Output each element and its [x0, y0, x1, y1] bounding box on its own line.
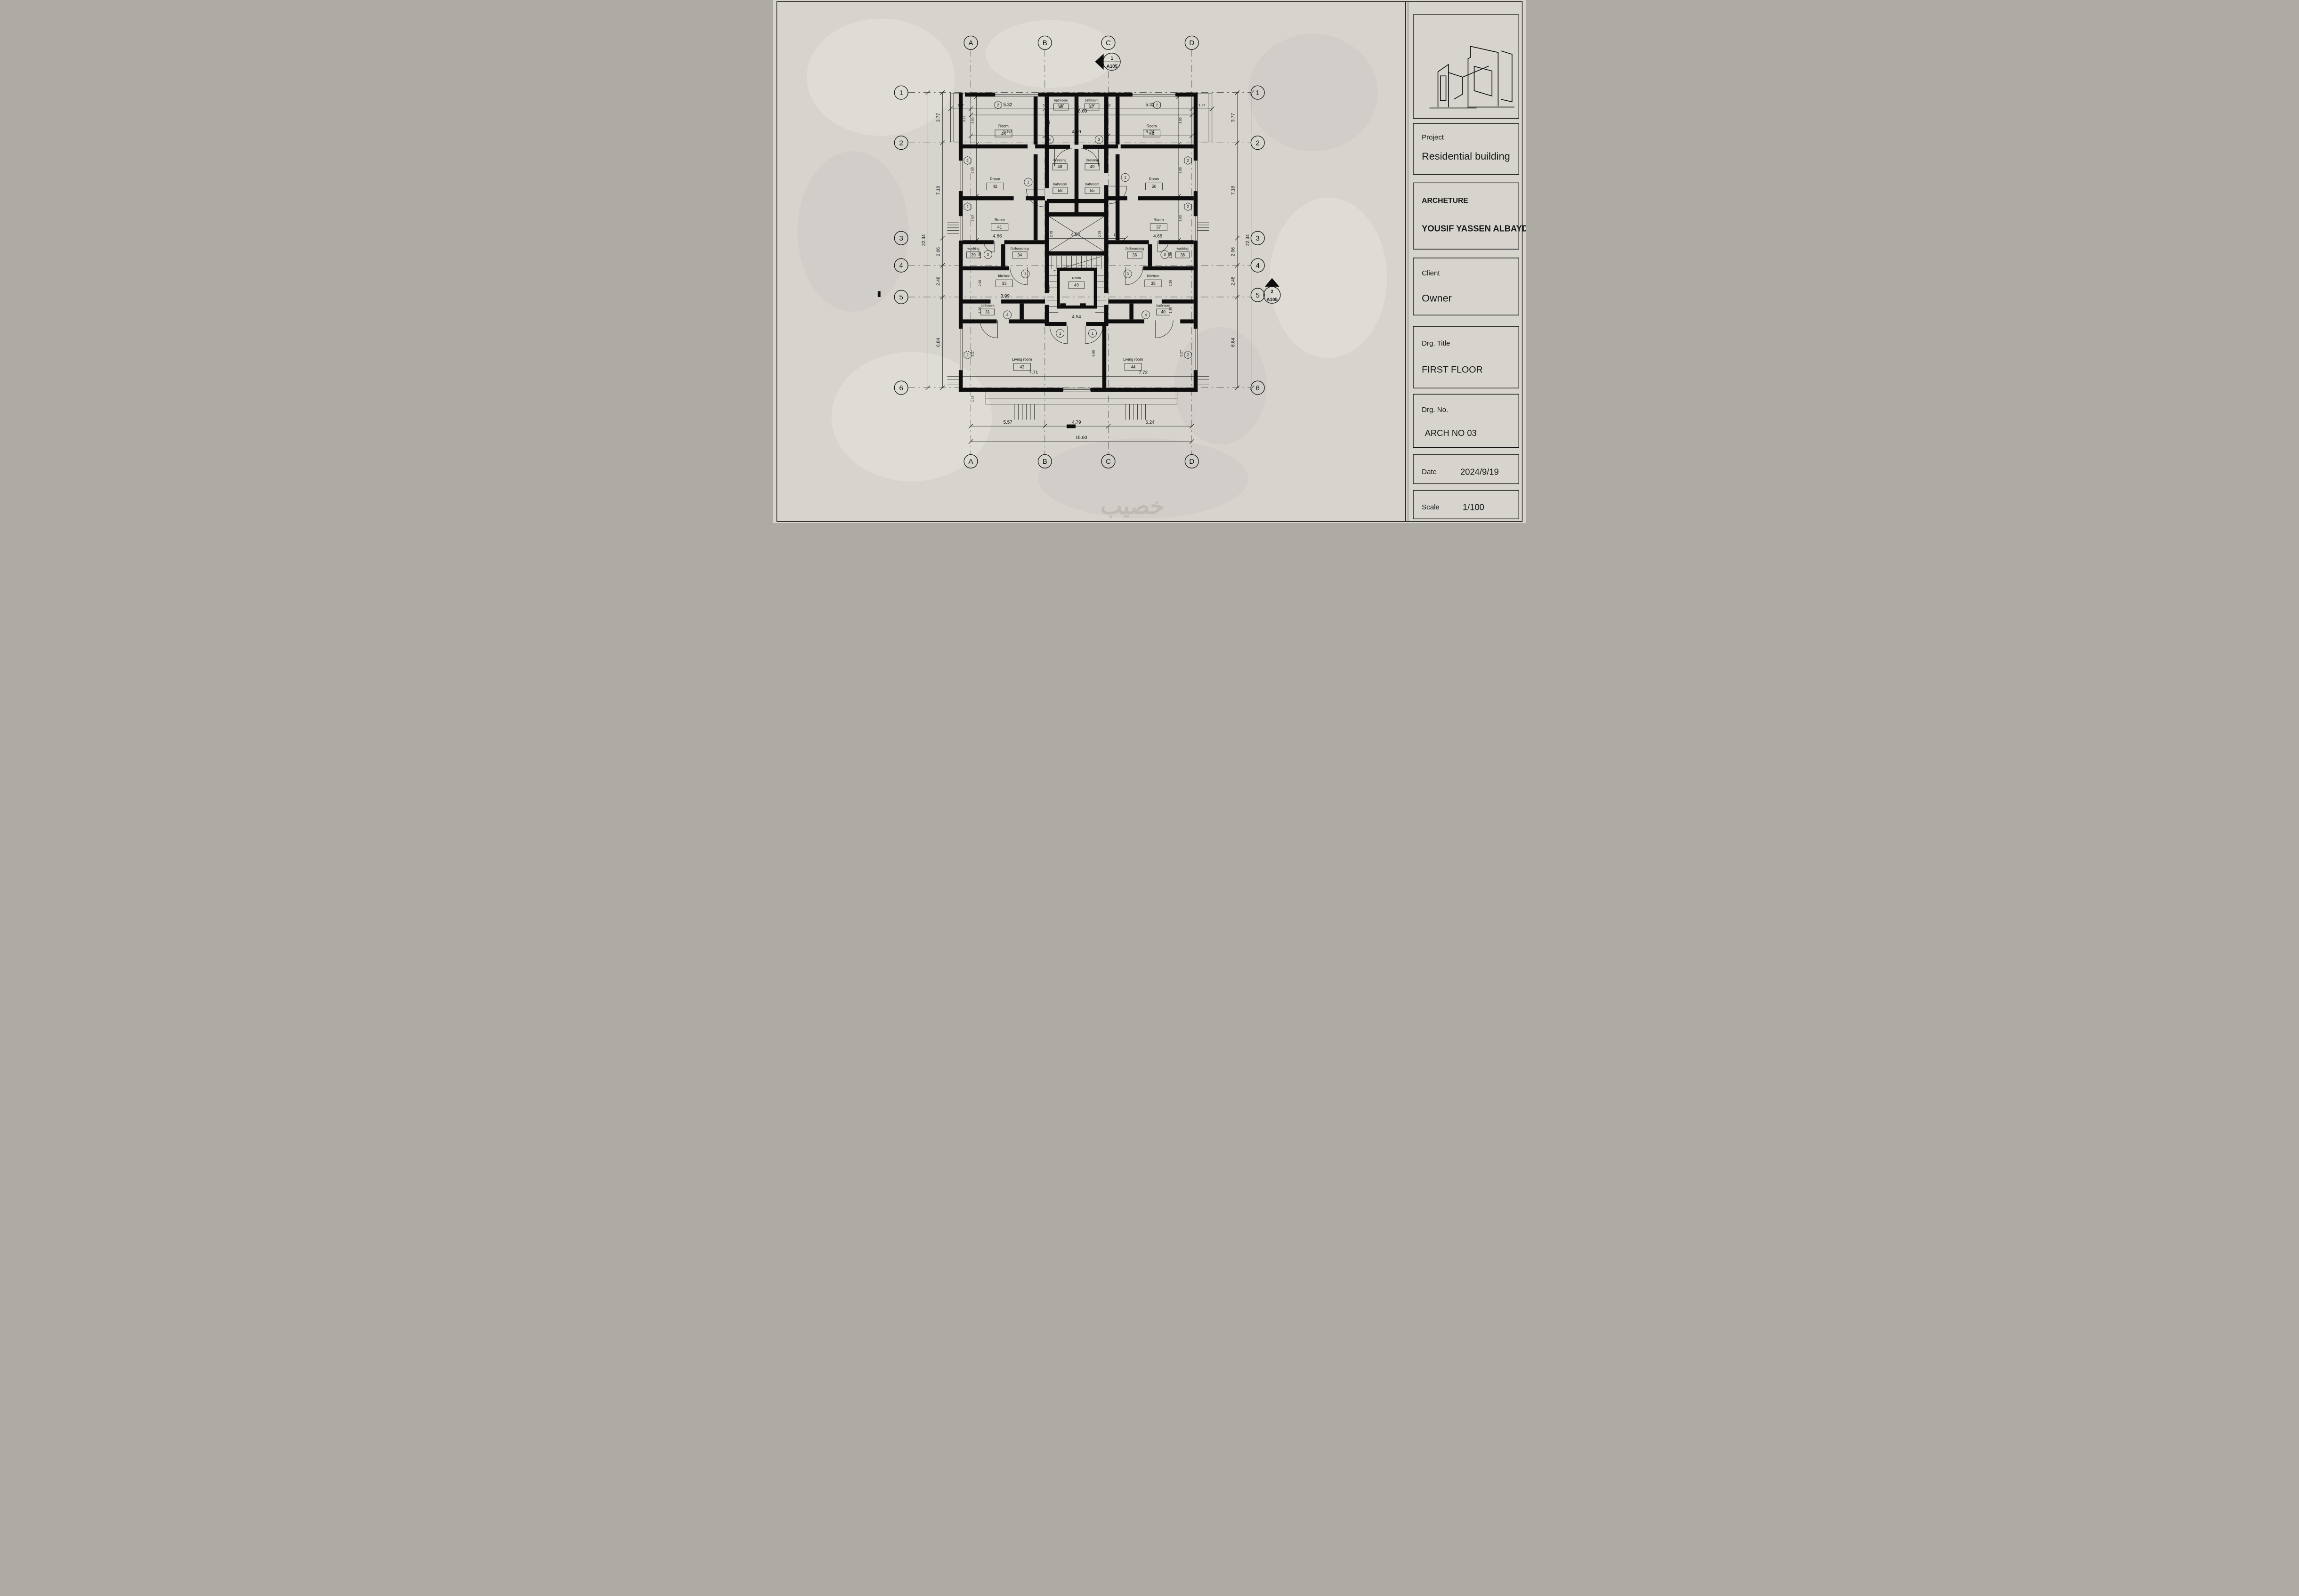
drg-no-label: Drg. No.	[1422, 406, 1448, 414]
svg-text:bathroom: bathroom	[1157, 305, 1170, 308]
grid-row-4-left: 4	[899, 262, 903, 270]
svg-text:1: 1	[1124, 176, 1126, 180]
svg-text:2: 2	[1187, 159, 1189, 163]
room-l-kitchen: kitchen33	[996, 274, 1013, 287]
window-tag-2b: 2	[1154, 101, 1161, 109]
svg-text:54: 54	[1149, 131, 1154, 136]
svg-text:Dishwashing: Dishwashing	[1011, 247, 1029, 250]
client-label: Client	[1422, 269, 1440, 277]
window-tag-2f: 2	[1184, 203, 1191, 211]
svg-text:2: 2	[1187, 353, 1189, 357]
shaft-lightwell	[1049, 216, 1104, 251]
scale-label: Scale	[1422, 503, 1440, 511]
dim-r-living-w: 7.72	[1139, 370, 1148, 375]
svg-text:Dressing: Dressing	[1086, 159, 1099, 162]
drg-title-value: FIRST FLOOR	[1422, 364, 1483, 375]
svg-text:Dressing: Dressing	[1053, 159, 1066, 162]
door-tag-3c: 3	[984, 250, 992, 258]
dim-right-34: 2.06	[1231, 247, 1236, 256]
svg-text:47: 47	[1089, 105, 1094, 109]
grid-col-D-top: D	[1189, 39, 1194, 47]
drg-no-value: ARCH NO 03	[1425, 428, 1477, 438]
svg-text:40: 40	[1161, 310, 1166, 314]
grid-col-D-bottom: D	[1189, 458, 1194, 466]
dim-r-kitchen-h: 2.50	[1169, 280, 1173, 287]
dim-right-12: 3.77	[1231, 113, 1236, 122]
client-box	[1413, 258, 1519, 315]
dim-l-kitchen-w: 3.99	[1001, 294, 1010, 299]
architect-value: YOUSIF YASSEN ALBAYDA	[1422, 224, 1526, 234]
dim-r-living-h: 5.27	[1180, 350, 1183, 357]
grid-row-5-left: 5	[899, 293, 903, 301]
svg-text:34: 34	[1017, 253, 1022, 258]
door-tag-3e: 3	[1021, 270, 1029, 278]
client-value: Owner	[1422, 292, 1452, 304]
scale-value: 1/100	[1463, 502, 1484, 512]
room-l-dishwashing: Dishwashing34	[1011, 247, 1029, 258]
room-l-bath-mid: bathroom58	[1053, 183, 1068, 193]
dim-right-45: 2.48	[1231, 276, 1236, 286]
svg-text:Living room: Living room	[1012, 357, 1032, 362]
project-box	[1413, 123, 1519, 174]
dim-room37-w: 4.66	[1153, 234, 1163, 239]
architect-label: ARCHETURE	[1422, 197, 1468, 205]
svg-text:58: 58	[1058, 188, 1062, 193]
dim-left-45: 2.48	[936, 276, 941, 286]
svg-text:2: 2	[966, 353, 968, 357]
logo-building-lineart	[1430, 46, 1514, 108]
svg-text:49: 49	[1090, 164, 1094, 169]
svg-text:49: 49	[1074, 283, 1079, 288]
grid-row-6-left: 6	[899, 384, 903, 392]
svg-text:kitchen: kitchen	[998, 274, 1011, 278]
grid-col-A-bottom: A	[968, 458, 973, 466]
room-r-bath-mid: bathroom55	[1085, 183, 1100, 193]
logo-box	[1413, 15, 1519, 118]
svg-text:1: 1	[1092, 331, 1093, 336]
window-tag-2g: 2	[964, 351, 971, 359]
svg-text:bathroom: bathroom	[1054, 99, 1068, 103]
grid-row-6-right: 6	[1256, 384, 1260, 392]
svg-text:45: 45	[1001, 131, 1006, 136]
living-divider-wall	[1102, 326, 1107, 388]
drawing-sheet: خصيب Project Residential building ARCHET…	[773, 0, 1526, 523]
svg-text:3: 3	[1164, 253, 1166, 257]
drg-title-box	[1413, 326, 1519, 388]
window-tag-2a: 2	[995, 101, 1002, 109]
dim-l-bath-h: 1.20	[979, 307, 982, 314]
svg-text:39: 39	[971, 252, 976, 257]
door-tag-1d: 1	[1089, 329, 1097, 337]
svg-text:3: 3	[1098, 138, 1101, 142]
room-r3: Room37	[1150, 218, 1167, 231]
svg-text:Room: Room	[990, 177, 1000, 181]
balconies-terrace	[947, 93, 1212, 428]
svg-text:2: 2	[1271, 290, 1273, 295]
room-r-living: Living room44	[1123, 357, 1143, 371]
room-l3: Room41	[991, 218, 1008, 231]
grid-row-2-left: 2	[899, 139, 903, 147]
svg-text:2: 2	[966, 205, 968, 209]
dim-r-room3-h: 3.63	[1179, 215, 1182, 222]
date-label: Date	[1422, 468, 1437, 476]
project-value: Residential building	[1422, 150, 1510, 162]
room-l-washing: washing39	[967, 247, 980, 258]
door-tag-3d: 3	[1161, 250, 1169, 258]
date-value: 2024/9/19	[1460, 467, 1499, 477]
svg-text:Room: Room	[998, 124, 1009, 128]
dim-l-room3-h: 3.63	[971, 215, 975, 222]
room-r-kitchen: kitchen35	[1145, 274, 1162, 287]
core-walls	[1045, 97, 1109, 326]
room-l-bath-low: bathroom31	[981, 305, 995, 315]
section-line-end-tick	[878, 291, 881, 297]
room-r-washing: washing38	[1176, 247, 1190, 258]
door-tag-4a: 4	[1004, 311, 1012, 319]
grid-row-1-left: 1	[899, 89, 903, 97]
room-r-dressing: Dressing49	[1085, 159, 1100, 170]
svg-text:Dishwashing: Dishwashing	[1125, 247, 1144, 250]
drg-title-label: Drg. Title	[1422, 339, 1450, 347]
svg-text:Living room: Living room	[1123, 357, 1143, 362]
dim-shaft-h-l: 2.78	[1050, 231, 1053, 237]
dim-r-washing-h: 1.56	[1169, 252, 1173, 259]
grid-row-2-right: 2	[1256, 139, 1260, 147]
svg-text:Room: Room	[995, 218, 1005, 222]
window-tag-2d: 2	[1184, 156, 1191, 164]
svg-text:43: 43	[1020, 365, 1024, 370]
svg-text:bathroom: bathroom	[1085, 183, 1099, 186]
dim-room-w-right: 5.32	[1145, 102, 1154, 107]
door-tag-4b: 4	[1142, 311, 1150, 319]
dim-c-living-h: 8.05	[1092, 350, 1095, 357]
dim-bottom-total: 16.60	[1076, 435, 1087, 441]
svg-text:Room: Room	[1153, 218, 1164, 222]
grid-row-4-right: 4	[1256, 262, 1260, 270]
svg-text:A105: A105	[1107, 64, 1118, 69]
door-tag-1a: 1	[1024, 178, 1032, 186]
svg-text:38: 38	[1180, 252, 1185, 257]
dim-r-room1-h: 3.60	[1179, 117, 1182, 124]
watermark-text: خصيب	[1101, 493, 1165, 519]
svg-text:1: 1	[1059, 331, 1061, 336]
dim-left-34: 2.06	[936, 247, 941, 256]
svg-text:3: 3	[1048, 138, 1051, 142]
dim-bottom-CD: 6.24	[1145, 420, 1155, 425]
grid-row-1-right: 1	[1256, 89, 1260, 97]
dim-right-23: 7.18	[1231, 185, 1236, 195]
svg-text:35: 35	[1151, 281, 1156, 286]
svg-text:46: 46	[1059, 105, 1063, 109]
grid-col-A-top: A	[968, 39, 973, 47]
svg-text:31: 31	[985, 310, 990, 314]
elevator	[1058, 269, 1095, 307]
svg-text:bathroom: bathroom	[981, 305, 995, 308]
dim-balcony-right: 1.27	[1199, 104, 1206, 107]
dim-left-total: 22.34	[921, 234, 926, 246]
svg-text:1: 1	[1111, 56, 1114, 61]
grid-col-C-top: C	[1106, 39, 1111, 47]
architect-box	[1413, 183, 1519, 249]
dim-l-room1-h: 3.60	[971, 117, 975, 124]
core-details	[1047, 216, 1106, 312]
svg-text:Room: Room	[1149, 177, 1159, 181]
dim-left-56: 6.84	[936, 338, 941, 347]
grid-row-3-right: 3	[1256, 234, 1260, 242]
svg-text:4: 4	[1145, 313, 1147, 317]
svg-text:bathroom: bathroom	[1085, 99, 1099, 103]
svg-text:3: 3	[1024, 272, 1027, 276]
svg-text:37: 37	[1156, 225, 1161, 230]
dim-l-room2-h: 3.60	[971, 167, 975, 174]
dim-stair-w: 4.54	[1072, 314, 1081, 320]
svg-text:36: 36	[1133, 253, 1137, 258]
svg-text:Room: Room	[1147, 124, 1157, 128]
svg-text:42: 42	[993, 184, 997, 189]
dim-bottom-AB: 5.57	[1004, 420, 1012, 425]
svg-text:washing: washing	[1176, 247, 1189, 250]
room-r-bath-low: bathroom40	[1157, 305, 1170, 315]
dim-bottom-BC: 4.79	[1072, 420, 1081, 425]
sheet-wrapper: خصيب Project Residential building ARCHET…	[773, 0, 1526, 523]
svg-text:bathroom: bathroom	[1053, 183, 1067, 186]
svg-text:kitchen: kitchen	[1147, 274, 1159, 278]
room-r-bath-top: bathroom47	[1085, 99, 1099, 110]
svg-text:3: 3	[987, 253, 989, 257]
dim-l-kitchen-h: 2.50	[979, 280, 982, 287]
svg-text:4: 4	[1006, 313, 1009, 317]
grid-row-3-left: 3	[899, 234, 903, 242]
room-l2: Room42	[987, 177, 1004, 190]
svg-text:1: 1	[1027, 180, 1029, 185]
grid-row-5-right: 5	[1256, 291, 1260, 299]
room-elevator: Room49	[1069, 277, 1085, 289]
grid-col-B-bottom: B	[1043, 458, 1047, 466]
svg-text:55: 55	[1090, 188, 1094, 193]
window-tag-2c: 2	[964, 156, 971, 164]
window-tag-2e: 2	[964, 203, 971, 211]
dim-balcony-h: 3.72	[963, 115, 966, 122]
room-r2: Room50	[1145, 177, 1162, 190]
dim-left-23: 7.18	[936, 185, 941, 195]
room-r-dishwashing: Dishwashing36	[1125, 247, 1144, 258]
dim-room41-w: 4.66	[993, 234, 1002, 239]
dim-left-12: 3.77	[936, 113, 941, 122]
dim-shaft-h-r: 2.78	[1098, 231, 1101, 237]
svg-text:2: 2	[1187, 205, 1189, 209]
grid-col-B-top: B	[1043, 39, 1047, 47]
svg-text:A105: A105	[1266, 298, 1278, 303]
svg-text:50: 50	[1152, 184, 1157, 189]
door-tag-3f: 3	[1124, 270, 1132, 278]
svg-text:2: 2	[966, 159, 968, 163]
dim-right-total: 22.34	[1246, 234, 1251, 246]
door-tag-1b: 1	[1121, 173, 1129, 181]
svg-text:2: 2	[997, 103, 999, 107]
room-l-bath-top: bathroom46	[1053, 99, 1068, 110]
svg-text:2: 2	[1156, 103, 1158, 107]
svg-text:3: 3	[1127, 272, 1129, 276]
dim-l-living-w: 7.71	[1029, 370, 1038, 375]
drg-no-box	[1413, 394, 1519, 447]
dim-r-room2-h: 3.60	[1179, 167, 1182, 174]
project-label: Project	[1422, 134, 1444, 142]
grid-col-C-bottom: C	[1106, 458, 1111, 466]
dim-room-w-left: 5.32	[1004, 102, 1012, 107]
svg-text:48: 48	[1058, 164, 1062, 169]
dim-l-living-h: 5.27	[971, 350, 975, 357]
svg-text:Room: Room	[1072, 277, 1081, 280]
svg-text:44: 44	[1131, 365, 1135, 370]
door-tag-1c: 1	[1056, 329, 1064, 337]
svg-text:41: 41	[997, 225, 1002, 230]
door-tag-3b: 3	[1095, 136, 1103, 144]
title-block: Project Residential building ARCHETURE Y…	[1413, 15, 1526, 519]
svg-text:33: 33	[1002, 281, 1007, 286]
room-l-living: Living room43	[1012, 357, 1032, 371]
svg-text:washing: washing	[967, 247, 979, 250]
dim-right-56: 6.84	[1231, 338, 1236, 347]
dim-terrace-h: 1.39	[971, 395, 975, 402]
